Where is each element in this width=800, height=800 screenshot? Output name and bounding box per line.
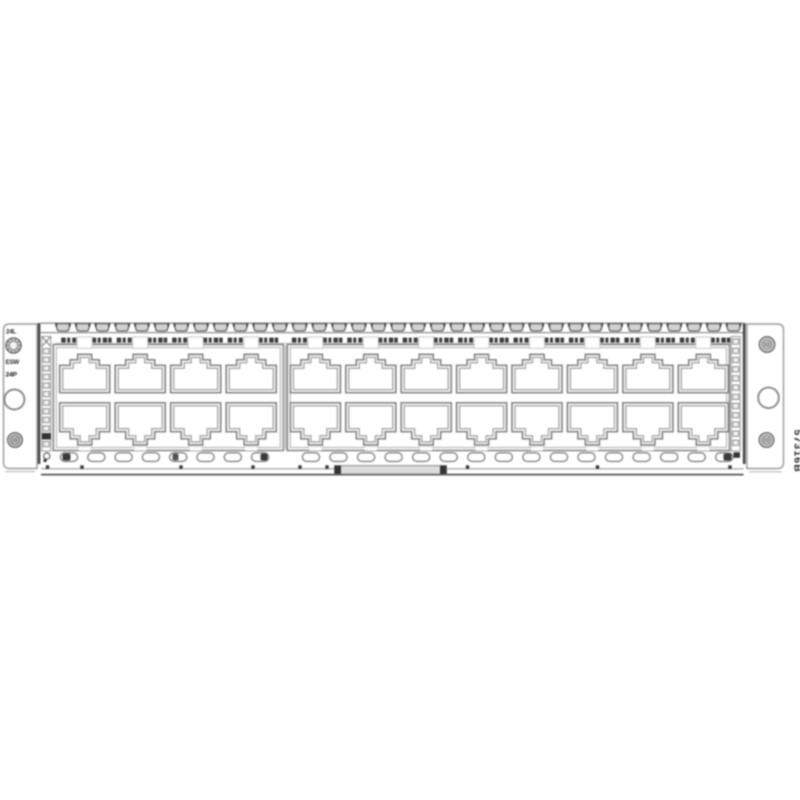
svg-text:ESW: ESW bbox=[6, 359, 20, 366]
svg-text:24P: 24P bbox=[6, 372, 18, 379]
svg-text:24L: 24L bbox=[6, 329, 16, 336]
svg-text:57316B: 57316B bbox=[792, 430, 800, 473]
